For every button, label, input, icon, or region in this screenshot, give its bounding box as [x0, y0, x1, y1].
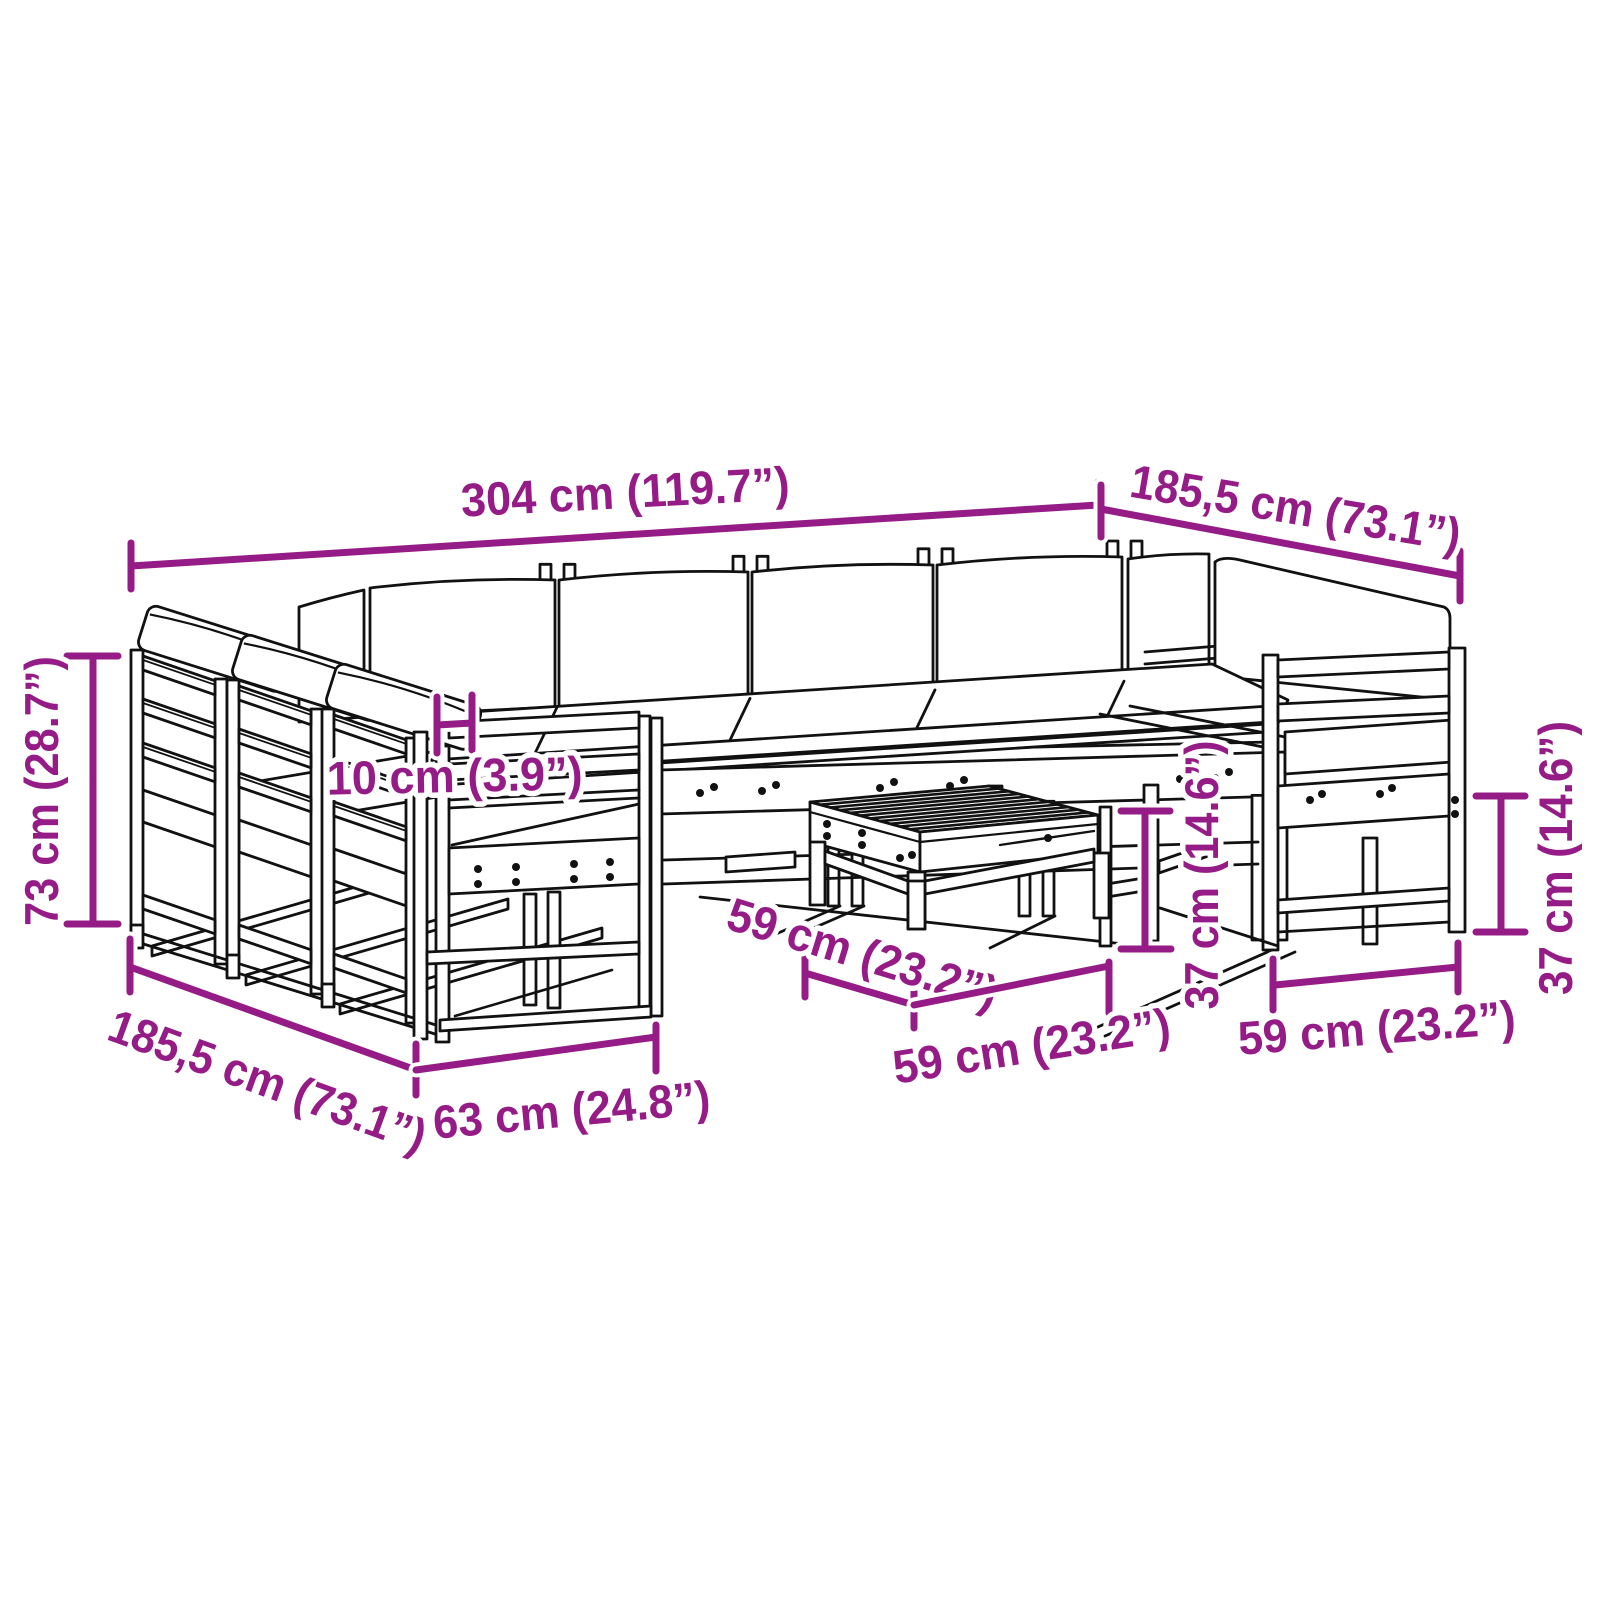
svg-text:37 cm (14.6”): 37 cm (14.6”): [1529, 721, 1582, 995]
svg-text:37 cm (14.6”): 37 cm (14.6”): [1175, 741, 1228, 1010]
svg-text:73 cm (28.7”): 73 cm (28.7”): [15, 656, 68, 926]
svg-text:10 cm (3.9”): 10 cm (3.9”): [326, 746, 583, 804]
